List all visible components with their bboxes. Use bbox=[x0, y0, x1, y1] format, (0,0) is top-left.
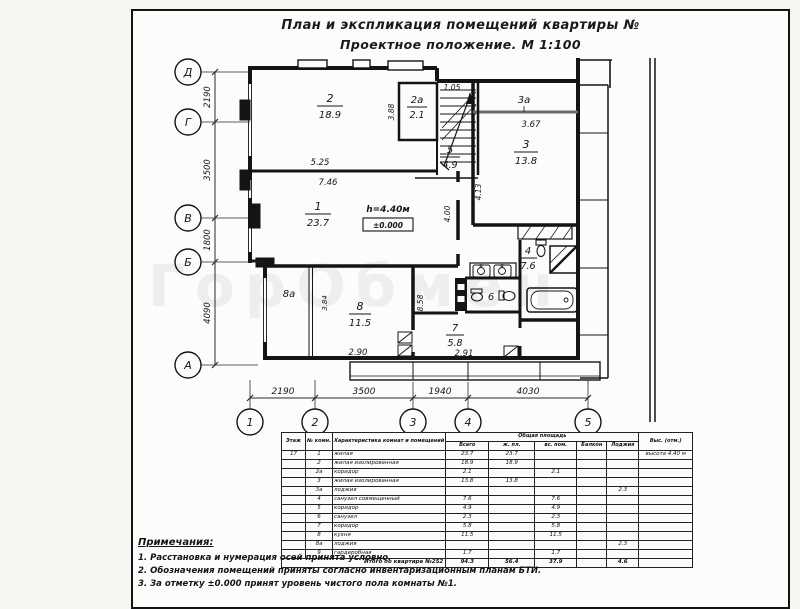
table-cell: 3 bbox=[306, 478, 333, 487]
table-cell bbox=[639, 496, 693, 505]
table-cell bbox=[607, 469, 639, 478]
bottom-balcony-slab bbox=[350, 362, 600, 380]
col-header-balcony: Балкон bbox=[577, 442, 607, 451]
axis-bubble-G: Г bbox=[175, 109, 201, 135]
axis-bubble-D: Д bbox=[175, 59, 201, 85]
table-cell: 5.8 bbox=[535, 523, 577, 532]
axis-label: А bbox=[183, 359, 192, 372]
right-loggia-strip bbox=[580, 58, 655, 422]
table-cell: 2 bbox=[306, 460, 333, 469]
col-header-descr: Характеристика комнат и помещений bbox=[333, 433, 446, 451]
table-cell: 2.3 bbox=[446, 514, 489, 523]
col-header-area-group: Общая площадь bbox=[446, 433, 639, 442]
table-cell: 5.8 bbox=[446, 523, 489, 532]
dim-2-91: 2.91 bbox=[455, 349, 474, 359]
table-cell bbox=[639, 469, 693, 478]
room-area: 18.9 bbox=[319, 110, 341, 121]
dim-3-88: 3.88 bbox=[387, 103, 396, 120]
table-cell bbox=[639, 505, 693, 514]
axis-label: 3 bbox=[410, 416, 417, 429]
table-cell bbox=[446, 487, 489, 496]
dim-4-13: 4.13 bbox=[474, 183, 483, 200]
table-cell: жилая изолированная bbox=[333, 478, 446, 487]
room-no: 2а bbox=[411, 95, 424, 106]
ceiling-height-note: h=4.40м bbox=[366, 205, 410, 215]
table-cell bbox=[535, 460, 577, 469]
table-cell: 2.3 bbox=[535, 514, 577, 523]
table-cell: коридор bbox=[333, 523, 446, 532]
room-area: 2.1 bbox=[409, 110, 424, 121]
col-header-total: Всего bbox=[446, 442, 489, 451]
room-no: 4 bbox=[525, 246, 531, 257]
table-cell bbox=[577, 523, 607, 532]
table-cell: санузел bbox=[333, 514, 446, 523]
room-no: 1 bbox=[315, 200, 322, 213]
table-cell: 2.1 bbox=[446, 469, 489, 478]
axis-label: 5 bbox=[585, 416, 592, 429]
table-cell: 2.3 bbox=[607, 487, 639, 496]
table-cell bbox=[282, 469, 306, 478]
room-area: 13.8 bbox=[515, 156, 537, 167]
room-8-label: 8 11.5 bbox=[349, 300, 371, 329]
row-dim: 3500 bbox=[203, 159, 213, 181]
table-cell bbox=[577, 514, 607, 523]
table-cell bbox=[607, 451, 639, 460]
notes-block: Примечания: 1. Расстановка и нумерация о… bbox=[138, 537, 738, 590]
dim-5-25: 5.25 bbox=[311, 158, 330, 168]
table-cell bbox=[607, 496, 639, 505]
dim-3-84: 3.84 bbox=[321, 295, 329, 311]
table-cell: коридор bbox=[333, 505, 446, 514]
table-cell: высота 4.40 м bbox=[639, 451, 693, 460]
table-cell bbox=[607, 460, 639, 469]
table-cell: лоджия bbox=[333, 487, 446, 496]
dim-4-00: 4.00 bbox=[443, 205, 452, 222]
col-header-note: Выс. (отм.) bbox=[639, 433, 693, 451]
table-cell: 4.9 bbox=[535, 505, 577, 514]
outer-walls bbox=[240, 58, 612, 360]
table-cell: 2.1 bbox=[535, 469, 577, 478]
shower-tray-icon bbox=[550, 246, 577, 273]
col-header-room-no: № комн. bbox=[306, 433, 333, 451]
dim-8-58: 8.58 bbox=[416, 294, 425, 311]
table-cell bbox=[282, 460, 306, 469]
room-no: 3а bbox=[518, 95, 531, 106]
col-dim: 2190 bbox=[272, 387, 295, 397]
dim-3-67: 3.67 bbox=[522, 120, 542, 130]
col-header-loggia: Лоджия bbox=[607, 442, 639, 451]
table-cell bbox=[607, 478, 639, 487]
table-cell: 7 bbox=[306, 523, 333, 532]
row-dim: 4090 bbox=[203, 302, 213, 324]
table-cell bbox=[489, 469, 535, 478]
table-cell bbox=[639, 523, 693, 532]
room-no: 7 bbox=[452, 323, 459, 334]
col-dim: 4030 bbox=[517, 387, 540, 397]
table-cell: 4 bbox=[306, 496, 333, 505]
table-cell bbox=[282, 478, 306, 487]
table-cell bbox=[282, 496, 306, 505]
table-row: 4санузел совмещенный7.67.6 bbox=[282, 496, 693, 505]
table-cell: 23.7 bbox=[489, 451, 535, 460]
row-axis-bubbles: Д Г В Б А 2190 3500 1800 4090 bbox=[175, 59, 213, 378]
table-cell: 3а bbox=[306, 487, 333, 496]
interior-dimensions: 5.25 7.46 3.88 1.05 3.67 4.13 4.00 8.58 … bbox=[311, 83, 542, 359]
table-cell bbox=[535, 451, 577, 460]
table-row: 5коридор4.94.9 bbox=[282, 505, 693, 514]
table-cell: коридор bbox=[333, 469, 446, 478]
col-header-living: ж. пл. bbox=[489, 442, 535, 451]
axis-bubble-1: 1 bbox=[237, 409, 263, 435]
toilet-icon bbox=[499, 291, 515, 301]
room-7-label: 7 5.8 bbox=[446, 323, 464, 349]
table-cell: 17 bbox=[282, 451, 306, 460]
toilet-icon bbox=[536, 240, 546, 257]
table-cell bbox=[489, 514, 535, 523]
table-cell bbox=[607, 514, 639, 523]
axis-label: В bbox=[184, 212, 192, 225]
table-cell bbox=[607, 523, 639, 532]
table-cell bbox=[577, 496, 607, 505]
table-row: 6санузел2.32.3 bbox=[282, 514, 693, 523]
table-cell bbox=[282, 523, 306, 532]
wc-6-fixtures bbox=[455, 278, 515, 311]
col-header-aux: вс. пом. bbox=[535, 442, 577, 451]
table-cell bbox=[639, 478, 693, 487]
room-area: 7.6 bbox=[520, 261, 535, 272]
note-item-3: 3. За отметку ±0.000 принят уровень чист… bbox=[138, 578, 738, 591]
table-cell bbox=[577, 487, 607, 496]
table-cell bbox=[577, 505, 607, 514]
table-cell bbox=[282, 487, 306, 496]
table-row: 171жилая23.723.7высота 4.40 м bbox=[282, 451, 693, 460]
table-cell bbox=[639, 487, 693, 496]
room-2a-label: 2а 2.1 bbox=[407, 95, 427, 121]
table-cell bbox=[577, 451, 607, 460]
room-6-label: 6 bbox=[488, 292, 494, 303]
axis-bubble-B: Б bbox=[175, 249, 201, 275]
table-cell: 23.7 bbox=[446, 451, 489, 460]
table-cell bbox=[577, 469, 607, 478]
table-cell: 5 bbox=[306, 505, 333, 514]
table-cell bbox=[639, 460, 693, 469]
axis-label: Д bbox=[183, 66, 193, 79]
col-header-floor: Этаж bbox=[282, 433, 306, 451]
table-row: 2жилая изолированная18.918.9 bbox=[282, 460, 693, 469]
room-2-label: 2 18.9 bbox=[317, 92, 343, 121]
room-3-label: 3 13.8 bbox=[514, 138, 538, 167]
room-area: 11.5 bbox=[349, 318, 371, 329]
room-area: 23.7 bbox=[307, 218, 330, 229]
table-cell: жилая изолированная bbox=[333, 460, 446, 469]
scanned-floorplan-page: { "colors": { "ink": "#141414", "paper":… bbox=[0, 0, 800, 600]
room-8a-label: 8а bbox=[283, 289, 296, 300]
table-cell bbox=[607, 505, 639, 514]
table-cell: 7.6 bbox=[535, 496, 577, 505]
table-cell: 18.9 bbox=[489, 460, 535, 469]
table-cell: 6 bbox=[306, 514, 333, 523]
table-row: 3жилая изолированная13.813.8 bbox=[282, 478, 693, 487]
room-no: 5 bbox=[447, 145, 453, 156]
table-header: Этаж № комн. Характеристика комнат и пом… bbox=[282, 433, 693, 451]
note-item-1: 1. Расстановка и нумерация осей принята … bbox=[138, 552, 738, 565]
table-cell: 13.8 bbox=[489, 478, 535, 487]
row-dim: 1800 bbox=[203, 229, 213, 251]
washbasin-icon bbox=[471, 289, 483, 301]
table-row: 7коридор5.85.8 bbox=[282, 523, 693, 532]
table-cell bbox=[489, 496, 535, 505]
table-cell bbox=[639, 514, 693, 523]
level-annotations: h=4.40м ±0.000 bbox=[363, 205, 413, 231]
notes-heading: Примечания: bbox=[138, 537, 738, 548]
room-3a-label: 3а bbox=[518, 95, 531, 112]
axis-label: Г bbox=[185, 116, 192, 129]
axis-label: 2 bbox=[312, 416, 319, 429]
room-area: 5.8 bbox=[447, 338, 462, 349]
washbasin-counter bbox=[518, 226, 572, 239]
row-dim: 2190 bbox=[203, 86, 213, 108]
room-5-label: 5 4.9 bbox=[440, 145, 460, 171]
table-row: 2акоридор2.12.1 bbox=[282, 469, 693, 478]
axis-label: Б bbox=[184, 256, 192, 269]
axis-bubble-A: А bbox=[175, 352, 201, 378]
axis-bubble-V: В bbox=[175, 205, 201, 231]
col-dim: 3500 bbox=[353, 387, 376, 397]
table-cell: 1 bbox=[306, 451, 333, 460]
room-no: 6 bbox=[488, 292, 494, 303]
room-no: 8 bbox=[357, 300, 364, 313]
dim-1-05: 1.05 bbox=[444, 83, 461, 92]
table-cell bbox=[282, 505, 306, 514]
table-cell: 13.8 bbox=[446, 478, 489, 487]
axis-label: 4 bbox=[465, 416, 472, 429]
level-mark: ±0.000 bbox=[373, 221, 403, 230]
col-axis-bubbles: 1 2 3 4 5 2190 3500 1940 4030 bbox=[237, 387, 601, 435]
note-item-2: 2. Обозначения помещений приняты согласн… bbox=[138, 565, 738, 578]
room-no: 3 bbox=[523, 138, 530, 151]
dim-2-90: 2.90 bbox=[349, 348, 368, 358]
table-cell bbox=[577, 460, 607, 469]
table-cell: 7.6 bbox=[446, 496, 489, 505]
table-cell bbox=[535, 478, 577, 487]
table-cell: 18.9 bbox=[446, 460, 489, 469]
table-cell: 2а bbox=[306, 469, 333, 478]
col-dim: 1940 bbox=[429, 387, 452, 397]
table-cell bbox=[577, 478, 607, 487]
room-no: 8а bbox=[283, 289, 296, 300]
dim-7-46: 7.46 bbox=[319, 178, 339, 188]
table-row: 3алоджия2.3 bbox=[282, 487, 693, 496]
kitchen-sink-units bbox=[470, 263, 516, 278]
room-area: 4.9 bbox=[442, 160, 457, 171]
room-no: 2 bbox=[327, 92, 334, 105]
table-cell: санузел совмещенный bbox=[333, 496, 446, 505]
table-cell bbox=[489, 487, 535, 496]
axis-label: 1 bbox=[247, 416, 254, 429]
table-cell bbox=[535, 487, 577, 496]
table-cell: 4.9 bbox=[446, 505, 489, 514]
table-cell bbox=[489, 523, 535, 532]
room-4-label: 4 7.6 bbox=[519, 246, 537, 272]
table-cell: жилая bbox=[333, 451, 446, 460]
table-cell bbox=[489, 505, 535, 514]
table-cell bbox=[282, 514, 306, 523]
room-1-label: 1 23.7 bbox=[305, 200, 331, 229]
bathtub-icon bbox=[527, 288, 577, 312]
